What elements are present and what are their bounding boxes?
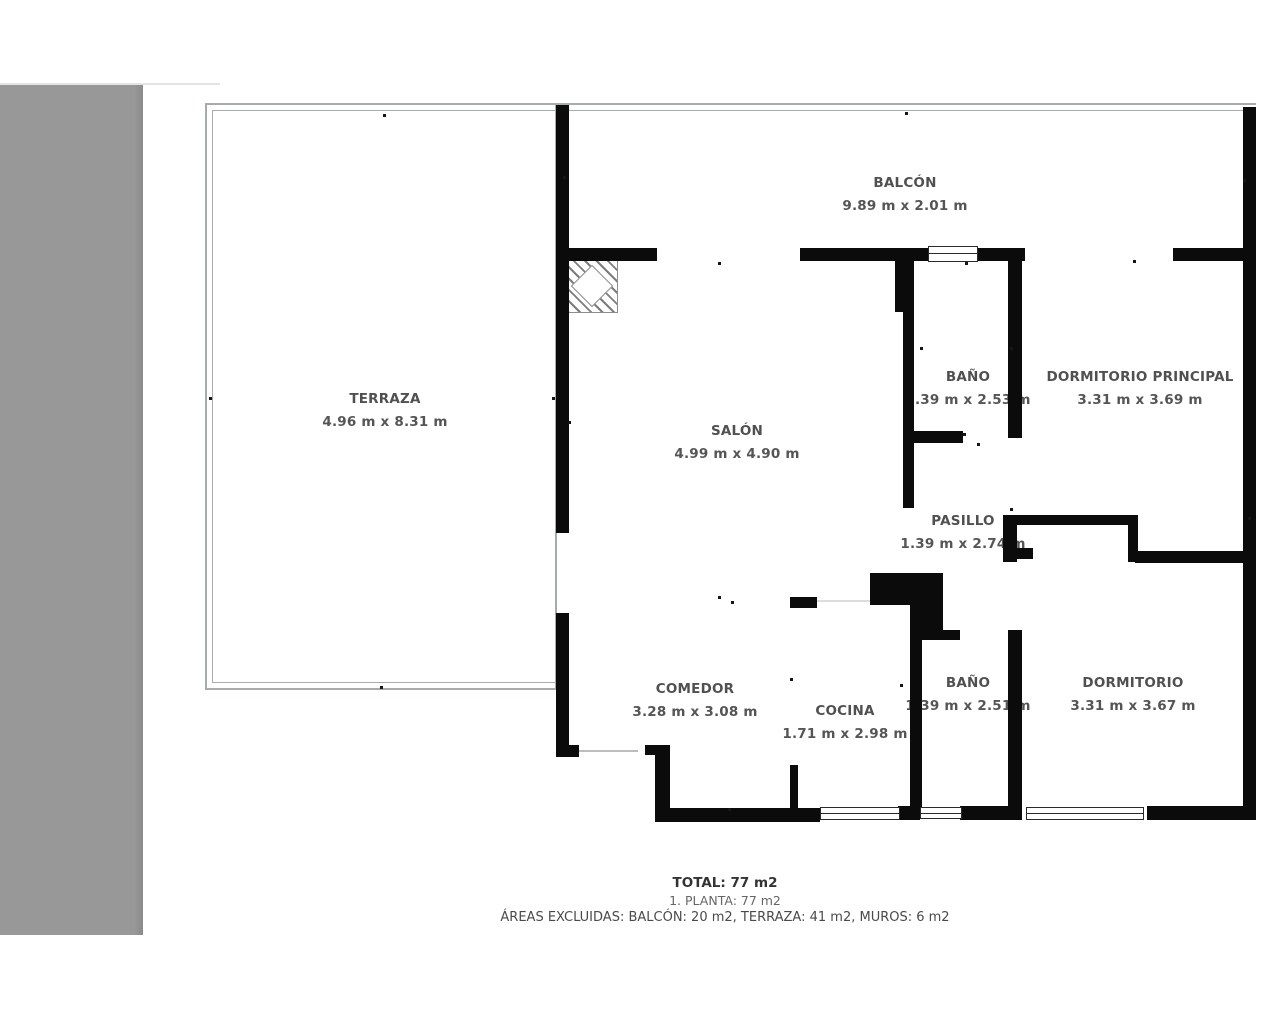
tick-mark: [790, 678, 793, 681]
tick-mark: [718, 262, 721, 265]
opening-line: [578, 750, 638, 752]
room-label-cocina: COCINA 1.71 m x 2.98 m: [782, 700, 907, 746]
wall-segment: [910, 637, 922, 817]
wall-segment: [960, 806, 1022, 820]
area-summary: TOTAL: 77 m2 1. PLANTA: 77 m2 ÁREAS EXCL…: [440, 874, 1010, 926]
room-dims: 4.99 m x 4.90 m: [674, 443, 799, 466]
tick-mark: [380, 686, 383, 689]
wall-segment: [556, 613, 569, 757]
tick-mark: [1243, 179, 1246, 182]
room-name: BAÑO: [946, 369, 990, 385]
wall-segment: [913, 431, 963, 443]
summary-planta: 1. PLANTA: 77 m2: [440, 892, 1010, 909]
tick-mark: [209, 397, 212, 400]
room-dims: 9.89 m x 2.01 m: [842, 195, 967, 218]
tick-mark: [1010, 508, 1013, 511]
room-name: TERRAZA: [349, 391, 420, 407]
tick-mark: [977, 443, 980, 446]
room-label-balcon: BALCÓN 9.89 m x 2.01 m: [842, 172, 967, 218]
opening-line: [817, 600, 872, 602]
room-name: SALÓN: [711, 423, 763, 439]
wall-segment: [556, 248, 657, 261]
wall-segment: [1017, 548, 1033, 559]
floorplan-page: TERRAZA 4.96 m x 8.31 m BALCÓN 9.89 m x …: [0, 0, 1280, 1024]
wall-segment: [790, 765, 798, 810]
column-hatch-icon: [566, 258, 618, 313]
tick-mark: [568, 421, 571, 424]
window-icon: [920, 807, 962, 819]
room-label-dormitorio-principal: DORMITORIO PRINCIPAL 3.31 m x 3.69 m: [1046, 366, 1233, 412]
top-hairline: [0, 83, 220, 85]
room-label-dormitorio: DORMITORIO 3.31 m x 3.67 m: [1070, 672, 1195, 718]
balcon-railing-outer: [557, 103, 1256, 105]
room-dims: 4.96 m x 8.31 m: [322, 411, 447, 434]
wall-segment: [1243, 107, 1256, 818]
left-gray-panel: [0, 85, 143, 935]
room-name: COCINA: [815, 703, 874, 719]
room-name: DORMITORIO PRINCIPAL: [1046, 369, 1233, 385]
room-name: BAÑO: [946, 675, 990, 691]
room-name: BALCÓN: [873, 175, 936, 191]
window-icon: [928, 246, 978, 262]
wall-segment: [790, 597, 817, 608]
wall-segment: [1008, 630, 1022, 817]
tick-mark: [383, 114, 386, 117]
wall-segment: [556, 105, 569, 533]
tick-mark: [963, 433, 966, 436]
room-dims: 3.31 m x 3.69 m: [1046, 389, 1233, 412]
tick-mark: [718, 596, 721, 599]
tick-mark: [563, 176, 566, 179]
room-name: PASILLO: [931, 513, 994, 529]
window-icon: [1026, 807, 1144, 820]
tick-mark: [900, 684, 903, 687]
wall-segment: [915, 630, 960, 640]
summary-total: TOTAL: 77 m2: [440, 874, 1010, 892]
room-dims: 1.71 m x 2.98 m: [782, 723, 907, 746]
tick-mark: [728, 808, 731, 811]
tick-mark: [552, 397, 555, 400]
room-label-salon: SALÓN 4.99 m x 4.90 m: [674, 420, 799, 466]
room-name: DORMITORIO: [1082, 675, 1183, 691]
room-dims: 3.31 m x 3.67 m: [1070, 695, 1195, 718]
tick-mark: [731, 601, 734, 604]
wall-segment: [1147, 806, 1256, 820]
wall-segment: [898, 806, 920, 820]
wall-segment: [903, 312, 914, 508]
wall-segment: [1008, 248, 1022, 438]
tick-mark: [1133, 260, 1136, 263]
tick-mark: [965, 262, 968, 265]
room-label-comedor: COMEDOR 3.28 m x 3.08 m: [632, 678, 757, 724]
balcon-railing-inner: [557, 110, 1256, 111]
wall-segment: [655, 808, 820, 822]
tick-mark: [920, 347, 923, 350]
tick-mark: [905, 112, 908, 115]
room-dims: 3.28 m x 3.08 m: [632, 701, 757, 724]
wall-segment: [1015, 515, 1138, 525]
wall-segment: [895, 250, 914, 312]
tick-mark: [1010, 347, 1013, 350]
summary-excluded: ÁREAS EXCLUIDAS: BALCÓN: 20 m2, TERRAZA:…: [440, 909, 1010, 926]
room-label-terraza: TERRAZA 4.96 m x 8.31 m: [322, 388, 447, 434]
wall-segment: [870, 573, 943, 605]
room-name: COMEDOR: [656, 681, 735, 697]
wall-segment: [569, 745, 579, 757]
tick-mark: [1248, 517, 1251, 520]
window-icon: [820, 807, 900, 820]
column-diamond: [571, 264, 613, 306]
wall-segment: [1135, 551, 1243, 563]
